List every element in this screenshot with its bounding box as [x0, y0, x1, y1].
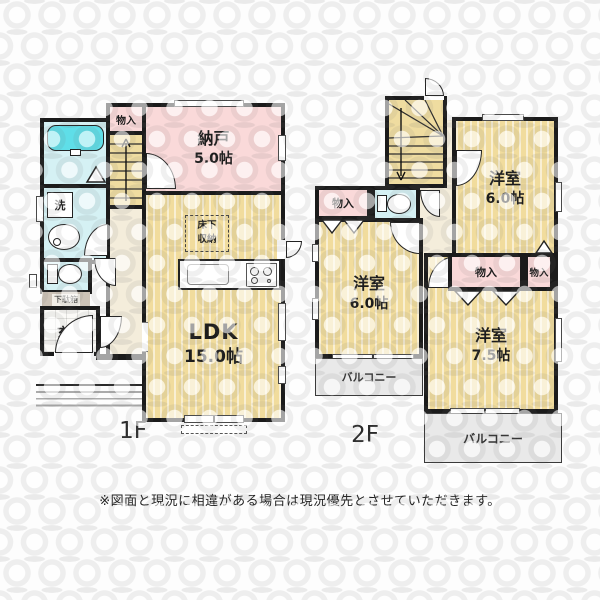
- room-western-6-top: 洋室 6.0帖: [452, 117, 558, 257]
- closet-2f-right-label: 物入: [529, 265, 548, 279]
- room-bl-label: 洋室: [319, 274, 419, 295]
- nando-label: 納戸: [146, 129, 281, 150]
- floor-label-2f: 2F: [332, 422, 398, 448]
- room-bl-size: 6.0帖: [319, 295, 419, 313]
- toilet-tank-icon: [47, 264, 58, 284]
- stairs-2f: [385, 96, 447, 188]
- balcony-bottom: バルコニー: [424, 413, 562, 463]
- ldk-window-bottom: [184, 415, 244, 423]
- balcony-left: バルコニー: [315, 358, 423, 396]
- burner-icon: [263, 267, 272, 276]
- basin-faucet-icon: [53, 238, 61, 246]
- porch-steps: [36, 384, 146, 408]
- closet-1f-label: 物入: [116, 112, 136, 127]
- nando-window-right: [278, 135, 286, 161]
- stairs-door-arc: [425, 78, 444, 96]
- balcony-left-label: バルコニー: [342, 369, 397, 385]
- washroom-window-left: [36, 196, 44, 222]
- underfloor-storage: 床下 収納: [185, 215, 229, 252]
- room-bl-window-left-2: [312, 298, 319, 320]
- burner-icon: [251, 277, 258, 284]
- kitchen-backdoor-gap: [277, 240, 286, 259]
- shoe-cabinet-label: 下駄箱: [52, 294, 80, 305]
- ldk-size: 15.0帖: [146, 346, 281, 368]
- room-tr-size: 6.0帖: [456, 190, 554, 208]
- ldk-window-right: [278, 303, 286, 341]
- kitchen-backdoor-arc: [286, 241, 302, 258]
- underfloor-line2: 収納: [197, 234, 216, 245]
- room-bl-window-left-1: [312, 244, 319, 262]
- room-br-size: 7.5帖: [428, 347, 554, 365]
- stairs-down-arrow: [397, 108, 405, 180]
- toilet-bowl-icon: [58, 264, 82, 284]
- room-tr-window-top: [482, 114, 524, 121]
- toilet-tank-icon-2f: [377, 195, 387, 212]
- ldk-label: LDK: [146, 319, 281, 346]
- room-tr-window-right: [555, 182, 562, 212]
- underfloor-line1: 床下: [197, 220, 216, 231]
- exterior-vent-icon: [29, 274, 37, 288]
- bathtub-icon: [47, 125, 104, 151]
- washer-icon: 洗: [47, 192, 73, 218]
- basin-icon: [48, 224, 80, 250]
- stairs-up-arrow: [122, 139, 130, 201]
- terrace-step: [181, 425, 247, 434]
- floorplan-canvas: 洗 下駄箱 玄関 物入 納戸 5.0帖: [0, 0, 600, 600]
- nando-window-top: [174, 100, 244, 107]
- bath-door-icon: [85, 165, 107, 184]
- toilet-bowl-icon-2f: [387, 194, 411, 214]
- toilet-door-arc-1f: [94, 258, 116, 286]
- closet-2f-center-bifold-icon: [452, 290, 522, 307]
- stove-icon: [246, 263, 277, 287]
- burner-icon: [267, 279, 271, 283]
- ldk-window-right-small: [278, 366, 286, 384]
- wall-segment: [96, 354, 146, 360]
- stairs-1f-treads: [110, 135, 142, 205]
- room-br-label: 洋室: [428, 326, 554, 347]
- washer-label: 洗: [55, 197, 66, 213]
- stairs-1f: [106, 131, 146, 209]
- disclaimer-note: ※図面と現況に相違がある場合は現況優先とさせていただきます。: [0, 490, 600, 509]
- closet-2f-left-label: 物入: [332, 195, 354, 211]
- room-br-window-right: [555, 318, 562, 362]
- closet-2f-left-bifold-icon: [320, 219, 366, 235]
- bath-faucet-icon: [70, 149, 81, 156]
- burner-icon: [250, 267, 259, 276]
- closet-2f-center: 物入: [448, 253, 524, 291]
- closet-2f-right-bifold-icon: [534, 239, 554, 255]
- stairs-2f-treads: [389, 100, 443, 184]
- balcony-bottom-label: バルコニー: [463, 430, 523, 447]
- hall-ldk-door-gap: [142, 322, 148, 352]
- kitchen-sink-icon: [187, 264, 229, 285]
- closet-2f-right: 物入: [524, 253, 554, 291]
- closet-2f-center-label: 物入: [475, 264, 497, 280]
- closet-2f-left: 物入: [315, 186, 371, 220]
- floor-label-1f: 1F: [98, 418, 168, 444]
